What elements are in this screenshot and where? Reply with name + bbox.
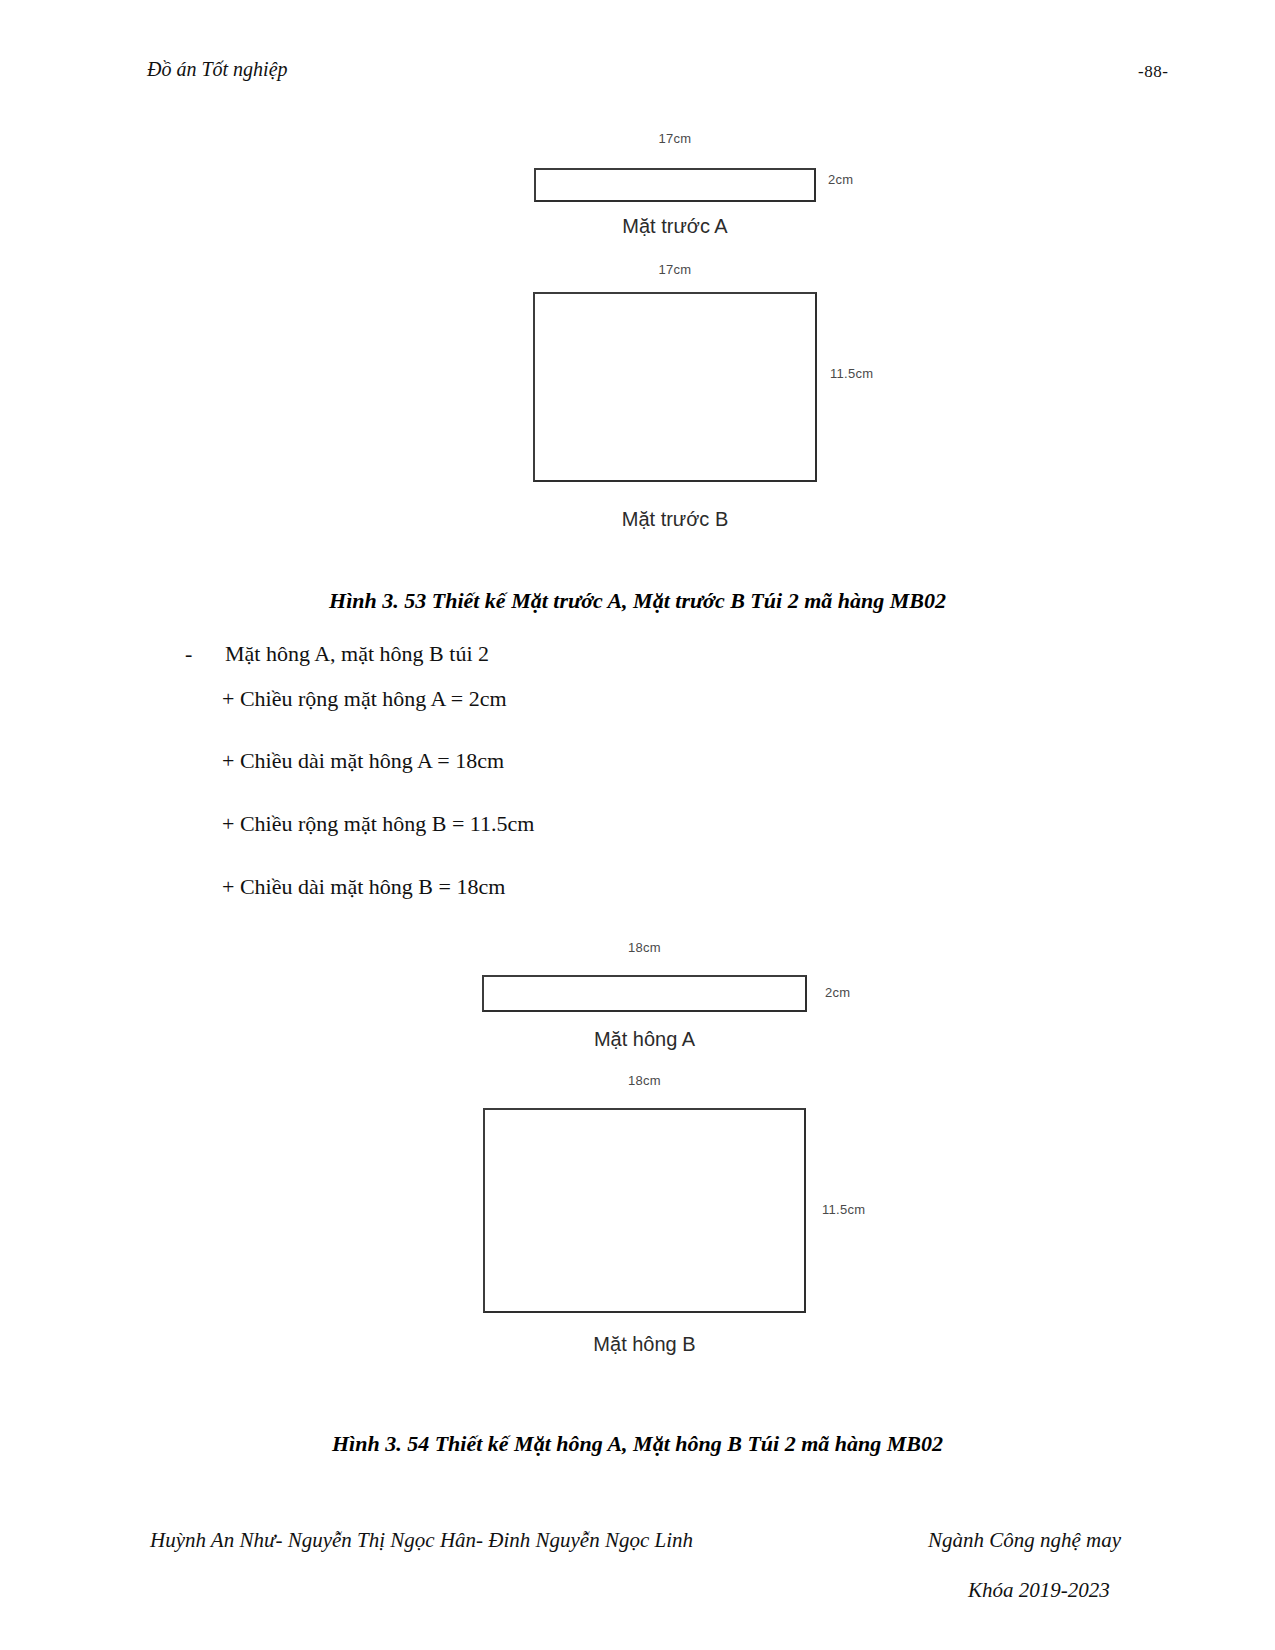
list-item: + Chiều dài mặt hông B = 18cm — [222, 874, 505, 900]
side-b-width-label: 18cm — [483, 1073, 806, 1088]
side-a-name: Mặt hông A — [482, 1028, 807, 1051]
front-b-shape — [533, 292, 817, 482]
front-b-width-label: 17cm — [533, 262, 817, 277]
side-a-width-label: 18cm — [482, 940, 807, 955]
front-a-width-label: 17cm — [534, 131, 816, 146]
front-a-name: Mặt trước A — [534, 215, 816, 238]
side-b-shape — [483, 1108, 806, 1313]
footer-cohort: Khóa 2019-2023 — [968, 1578, 1110, 1603]
front-b-height-label: 11.5cm — [830, 366, 873, 381]
list-item: + Chiều rộng mặt hông B = 11.5cm — [222, 811, 534, 837]
front-a-height-label: 2cm — [828, 172, 853, 187]
list-item: + Chiều rộng mặt hông A = 2cm — [222, 686, 507, 712]
front-b-name: Mặt trước B — [533, 508, 817, 531]
spec-list-heading: - Mặt hông A, mặt hông B túi 2 — [185, 641, 489, 667]
footer-department: Ngành Công nghệ may — [928, 1528, 1121, 1553]
doc-title: Đồ án Tốt nghiệp — [147, 58, 288, 81]
side-b-height-label: 11.5cm — [822, 1202, 865, 1217]
list-item: + Chiều dài mặt hông A = 18cm — [222, 748, 504, 774]
side-a-shape — [482, 975, 807, 1012]
document-page: Đồ án Tốt nghiệp -88- 17cm 2cm Mặt trước… — [0, 0, 1275, 1650]
side-a-height-label: 2cm — [825, 985, 850, 1000]
side-b-name: Mặt hông B — [483, 1333, 806, 1356]
figure-54-caption: Hình 3. 54 Thiết kế Mặt hông A, Mặt hông… — [0, 1431, 1275, 1457]
list-dash-marker: - — [185, 641, 225, 667]
front-a-shape — [534, 168, 816, 202]
footer-authors: Huỳnh An Như- Nguyễn Thị Ngọc Hân- Đinh … — [150, 1528, 693, 1553]
page-number: -88- — [1138, 62, 1168, 82]
spec-list-title: Mặt hông A, mặt hông B túi 2 — [225, 641, 489, 667]
figure-53-caption: Hình 3. 53 Thiết kế Mặt trước A, Mặt trư… — [0, 588, 1275, 614]
